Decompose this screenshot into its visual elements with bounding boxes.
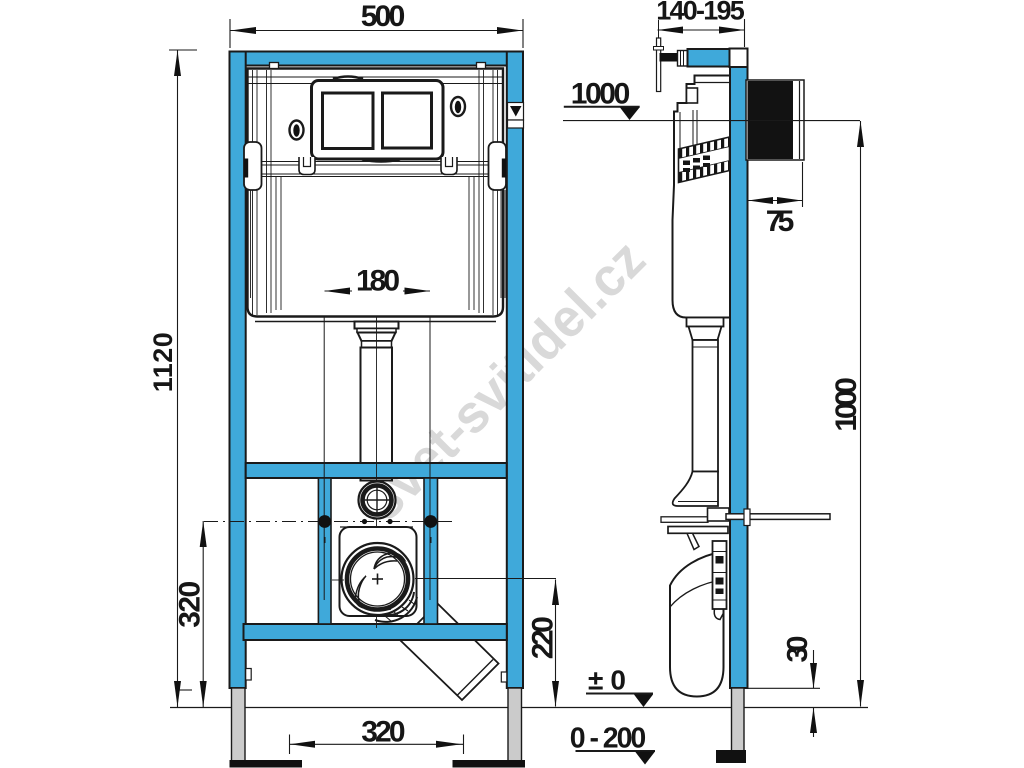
svg-text:1000: 1000 [830,377,863,432]
svg-text:0 - 200: 0 - 200 [570,723,647,755]
svg-text:140-195: 140-195 [656,0,745,26]
svg-text:500: 500 [361,0,406,33]
svg-text:75: 75 [766,205,795,238]
svg-text:220: 220 [527,616,560,659]
svg-text:1000: 1000 [571,78,631,111]
svg-text:180: 180 [356,265,400,298]
svg-text:320: 320 [174,581,207,628]
svg-text:320: 320 [361,716,405,749]
svg-text:1120: 1120 [148,332,178,392]
svg-text:30: 30 [782,636,814,663]
